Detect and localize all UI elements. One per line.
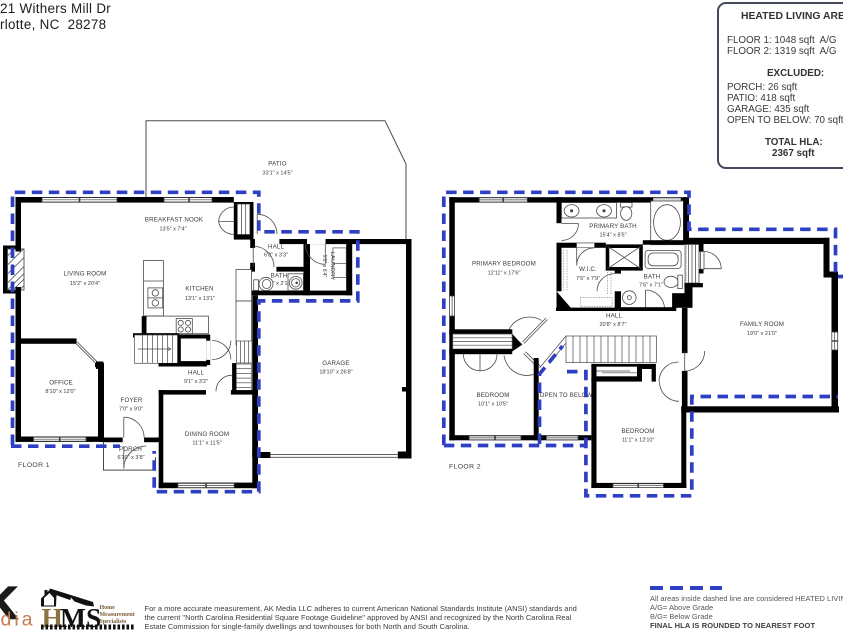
svg-text:W.I.C.: W.I.C.: [579, 266, 597, 273]
svg-text:KITCHEN: KITCHEN: [185, 286, 213, 293]
svg-text:18'10" x 26'8": 18'10" x 26'8": [319, 370, 352, 376]
svg-text:Measurement: Measurement: [100, 612, 135, 618]
svg-text:8'10" x 12'0": 8'10" x 12'0": [45, 389, 75, 395]
svg-text:HALL: HALL: [606, 313, 622, 320]
svg-text:20'8" x 8'7": 20'8" x 8'7": [599, 322, 626, 328]
svg-text:33'1" x 14'5": 33'1" x 14'5": [262, 171, 292, 177]
svg-text:12'11" x 17'6": 12'11" x 17'6": [488, 271, 521, 277]
svg-text:7'6" x 7'1": 7'6" x 7'1": [639, 283, 663, 289]
svg-text:13'1" x 13'1": 13'1" x 13'1": [185, 296, 215, 302]
svg-text:FAMILY ROOM: FAMILY ROOM: [740, 321, 784, 328]
svg-text:BATH: BATH: [644, 274, 661, 281]
svg-text:15'4" x 8'5": 15'4" x 8'5": [599, 233, 626, 239]
svg-text:PATIO: PATIO: [268, 161, 286, 168]
svg-text:9'1" x 3'2": 9'1" x 3'2": [184, 379, 208, 385]
svg-text:11'1" x 11'5": 11'1" x 11'5": [192, 441, 221, 447]
svg-text:LIVING ROOM: LIVING ROOM: [64, 271, 107, 278]
svg-text:PORCH: PORCH: [119, 446, 142, 453]
svg-text:Home: Home: [100, 605, 116, 611]
svg-text:11'1" x 12'10": 11'1" x 12'10": [622, 438, 655, 444]
svg-text:PRIMARY BATH: PRIMARY BATH: [589, 223, 637, 230]
svg-text:LAUNDRY: LAUNDRY: [329, 251, 335, 280]
svg-text:13'5" x 7'4": 13'5" x 7'4": [159, 227, 186, 233]
svg-text:10'1" x 10'5": 10'1" x 10'5": [478, 402, 508, 408]
svg-text:5'5" x 6'4": 5'5" x 6'4": [321, 255, 327, 278]
svg-text:GARAGE: GARAGE: [322, 360, 349, 367]
svg-text:FOYER: FOYER: [120, 397, 142, 404]
svg-text:BREAKFAST NOOK: BREAKFAST NOOK: [145, 217, 204, 224]
svg-text:6'10" x 3'8": 6'10" x 3'8": [117, 455, 144, 461]
svg-text:6'8" x 3'3": 6'8" x 3'3": [264, 253, 288, 259]
svg-text:BEDROOM: BEDROOM: [476, 392, 509, 399]
svg-text:7'6" x 7'9": 7'6" x 7'9": [576, 276, 600, 282]
svg-text:7'0" x 9'0": 7'0" x 9'0": [119, 407, 143, 413]
svg-text:15'2" x 20'4": 15'2" x 20'4": [70, 281, 100, 287]
svg-text:HALL: HALL: [268, 244, 284, 251]
svg-text:OFFICE: OFFICE: [49, 380, 73, 387]
svg-text:FLOOR 1: FLOOR 1: [18, 462, 50, 469]
svg-text:Specialists: Specialists: [100, 619, 127, 625]
svg-text:19'0" x 21'0": 19'0" x 21'0": [747, 331, 777, 337]
svg-text:dia: dia: [1, 609, 36, 631]
svg-text:HALL: HALL: [188, 370, 204, 377]
svg-text:BATH: BATH: [271, 273, 288, 280]
svg-text:DINING ROOM: DINING ROOM: [185, 431, 229, 438]
svg-text:PRIMARY BEDROOM: PRIMARY BEDROOM: [472, 261, 536, 268]
svg-text:FLOOR 2: FLOOR 2: [449, 464, 481, 471]
svg-text:BEDROOM: BEDROOM: [621, 428, 654, 435]
